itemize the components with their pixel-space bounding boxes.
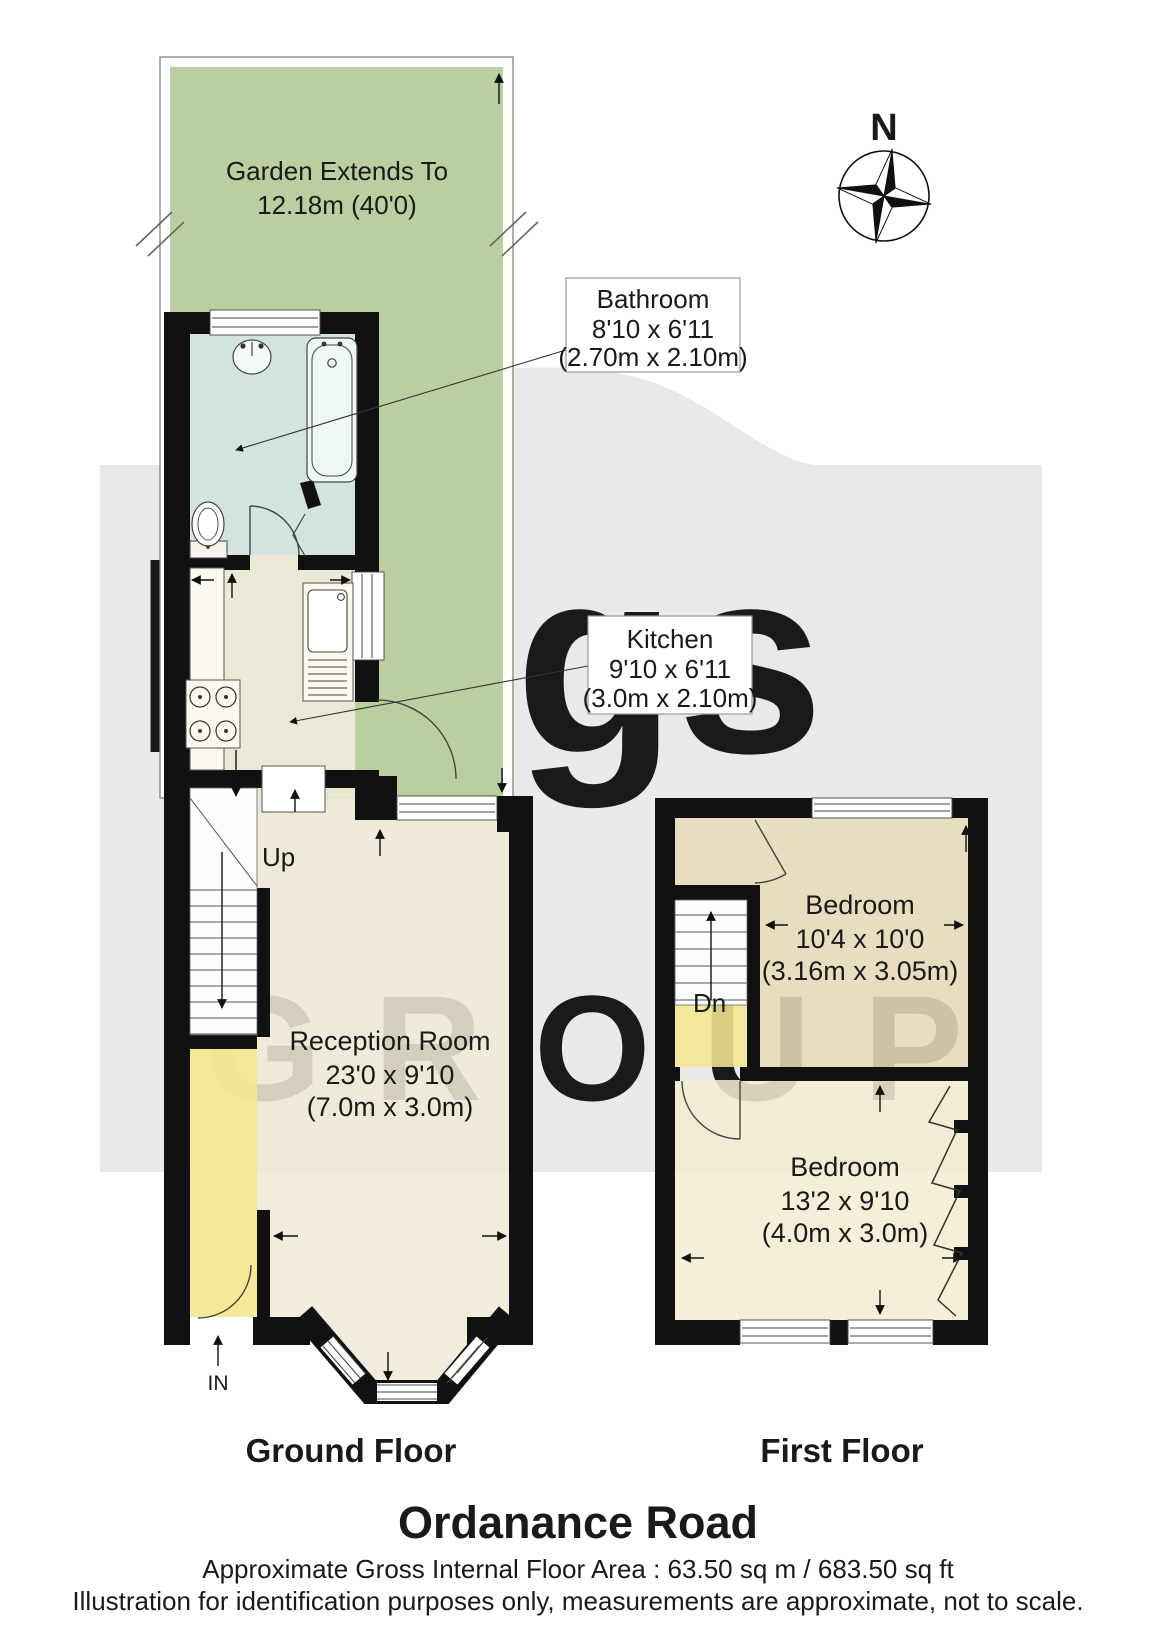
compass-north-label: N bbox=[870, 107, 897, 149]
floor-area-text: Approximate Gross Internal Floor Area : … bbox=[202, 1554, 954, 1584]
reception-name: Reception Room bbox=[289, 1026, 490, 1056]
disclaimer-text: Illustration for identification purposes… bbox=[72, 1586, 1083, 1616]
bedroom2-imperial: 13'2 x 9'10 bbox=[781, 1186, 910, 1216]
entrance-label: IN bbox=[208, 1372, 229, 1395]
reception-imperial: 23'0 x 9'10 bbox=[326, 1060, 455, 1090]
kitchen-name: Kitchen bbox=[627, 624, 714, 654]
bedroom1-imperial: 10'4 x 10'0 bbox=[796, 924, 925, 954]
bathroom-imperial: 8'10 x 6'11 bbox=[592, 314, 714, 344]
bathroom-name: Bathroom bbox=[597, 284, 710, 314]
ground-floor-label: Ground Floor bbox=[246, 1432, 457, 1469]
bedroom2-metric: (4.0m x 3.0m) bbox=[762, 1218, 929, 1248]
bedroom1-name: Bedroom bbox=[805, 890, 915, 920]
bathroom-metric: (2.70m x 2.10m) bbox=[558, 342, 747, 372]
kitchen-opening bbox=[262, 766, 325, 812]
kitchen-sink-icon bbox=[303, 583, 353, 701]
bedroom1-metric: (3.16m x 3.05m) bbox=[762, 956, 959, 986]
reception-metric: (7.0m x 3.0m) bbox=[307, 1092, 474, 1122]
garden-label-line2: 12.18m (40'0) bbox=[257, 190, 417, 220]
kitchen-metric: (3.0m x 2.10m) bbox=[583, 683, 758, 713]
floorplan-canvas: kings GROUP Garden Extends To 12.18m (40… bbox=[0, 0, 1150, 1625]
stairs-up-label: Up bbox=[262, 842, 295, 872]
hallway-floor bbox=[190, 1047, 257, 1317]
bedroom2-name: Bedroom bbox=[790, 1152, 900, 1182]
kitchen-imperial: 9'10 x 6'11 bbox=[609, 654, 731, 684]
hob-icon bbox=[186, 680, 240, 748]
first-floor-label: First Floor bbox=[760, 1432, 923, 1469]
floorplan-page: kings GROUP Garden Extends To 12.18m (40… bbox=[0, 0, 1150, 1625]
garden-label-line1: Garden Extends To bbox=[226, 156, 448, 186]
first-floor-stairs: Dn bbox=[675, 900, 747, 1018]
stairs-down-label: Dn bbox=[693, 988, 726, 1018]
bathtub-icon bbox=[307, 338, 357, 482]
sink-icon bbox=[233, 340, 271, 374]
page-title: Ordanance Road bbox=[398, 1497, 758, 1548]
